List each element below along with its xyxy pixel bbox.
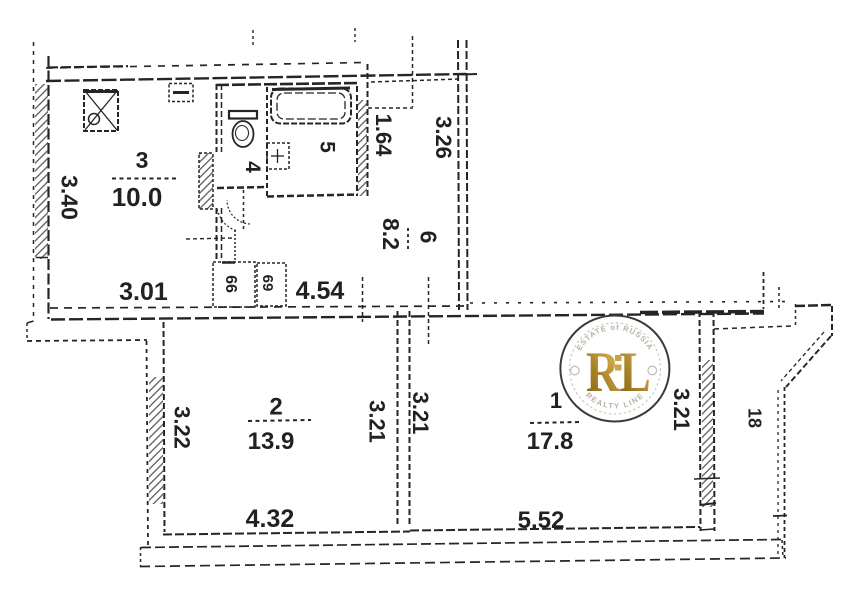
svg-text:6: 6 xyxy=(416,231,442,244)
svg-text:R: R xyxy=(586,342,621,404)
svg-text:4: 4 xyxy=(241,161,264,173)
svg-text:66: 66 xyxy=(222,275,239,293)
svg-text:1.64: 1.64 xyxy=(371,114,396,158)
svg-text:18: 18 xyxy=(745,408,765,428)
svg-text:17.8: 17.8 xyxy=(527,428,574,455)
svg-text:3.22: 3.22 xyxy=(170,406,195,449)
svg-text:3.21: 3.21 xyxy=(408,392,433,435)
svg-text:5: 5 xyxy=(316,141,339,153)
svg-text:3: 3 xyxy=(136,147,149,173)
svg-text:10.0: 10.0 xyxy=(112,182,163,212)
svg-text:69: 69 xyxy=(259,275,276,292)
svg-text:3.21: 3.21 xyxy=(365,400,390,443)
svg-text:2: 2 xyxy=(269,394,282,421)
svg-text:8.2: 8.2 xyxy=(378,218,404,250)
svg-text:4.54: 4.54 xyxy=(296,277,345,305)
svg-text:1: 1 xyxy=(550,388,562,413)
svg-text:13.9: 13.9 xyxy=(248,428,295,455)
svg-text:4.32: 4.32 xyxy=(246,505,295,533)
svg-text:3.26: 3.26 xyxy=(431,116,456,159)
svg-text:3.01: 3.01 xyxy=(119,278,168,306)
svg-text:5.52: 5.52 xyxy=(518,507,565,534)
svg-text:3.40: 3.40 xyxy=(57,175,83,220)
svg-text:3.21: 3.21 xyxy=(669,388,694,431)
svg-text:L: L xyxy=(620,342,651,404)
